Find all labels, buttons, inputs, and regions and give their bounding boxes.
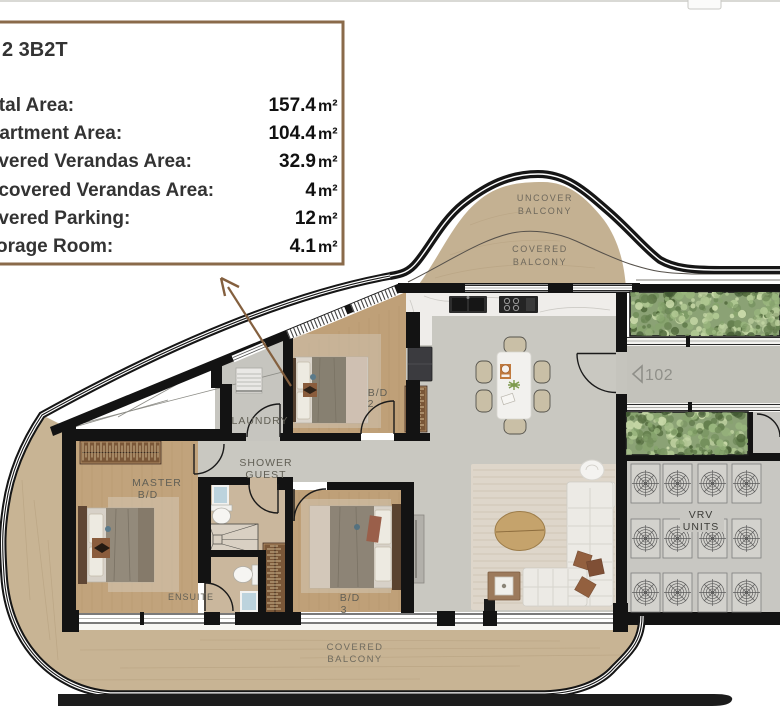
svg-text:UNCOVER: UNCOVER	[517, 193, 573, 203]
svg-text:102: 102	[645, 367, 673, 384]
svg-text:Uncovered Verandas Area:: Uncovered Verandas Area:	[0, 180, 214, 201]
svg-text:UNITS: UNITS	[683, 521, 720, 533]
svg-text:m²: m²	[318, 239, 338, 256]
svg-text:COVERED: COVERED	[512, 244, 568, 254]
svg-text:Total Area:: Total Area:	[0, 95, 74, 116]
svg-text:SHOWER: SHOWER	[239, 457, 292, 469]
svg-text:2 3B2T: 2 3B2T	[2, 39, 68, 61]
svg-text:3: 3	[341, 604, 348, 616]
svg-text:MASTER: MASTER	[132, 477, 182, 489]
svg-text:Storage Room:: Storage Room:	[0, 236, 113, 257]
svg-text:ENSUITE: ENSUITE	[168, 592, 214, 602]
svg-text:12: 12	[295, 208, 316, 229]
svg-text:B/D: B/D	[340, 592, 361, 604]
svg-text:Covered Verandas Area:: Covered Verandas Area:	[0, 151, 192, 172]
svg-text:157.4: 157.4	[268, 95, 316, 116]
svg-text:LAUNDRY: LAUNDRY	[232, 415, 289, 427]
svg-text:BALCONY: BALCONY	[513, 257, 567, 267]
svg-text:m²: m²	[318, 126, 338, 143]
svg-text:m²: m²	[318, 154, 338, 171]
svg-text:VRV: VRV	[689, 509, 713, 521]
svg-text:COVERED: COVERED	[327, 642, 384, 653]
svg-text:32.9: 32.9	[279, 151, 316, 172]
svg-text:B/D: B/D	[138, 489, 159, 501]
svg-text:m²: m²	[318, 98, 338, 115]
svg-text:104.4: 104.4	[268, 123, 316, 144]
svg-text:Apartment Area:: Apartment Area:	[0, 123, 122, 144]
svg-text:GUEST: GUEST	[245, 469, 286, 481]
svg-text:BALCONY: BALCONY	[518, 206, 572, 216]
svg-text:4: 4	[305, 180, 316, 201]
svg-text:4.1: 4.1	[290, 236, 317, 257]
svg-text:m²: m²	[318, 183, 338, 200]
svg-text:2: 2	[368, 398, 375, 410]
svg-text:BALCONY: BALCONY	[327, 654, 382, 665]
svg-text:m²: m²	[318, 211, 338, 228]
svg-text:Covered Parking:: Covered Parking:	[0, 208, 130, 229]
